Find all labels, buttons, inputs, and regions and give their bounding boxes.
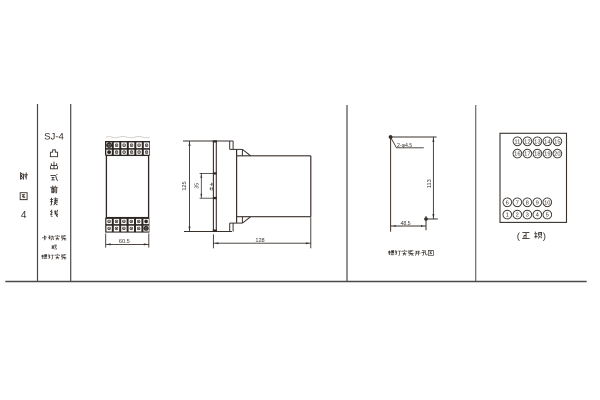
svg-text:8: 8 — [526, 200, 529, 206]
svg-text:48.5: 48.5 — [400, 221, 410, 227]
svg-text:11: 11 — [514, 139, 520, 145]
svg-text:): ) — [543, 231, 546, 242]
svg-text:125: 125 — [182, 181, 188, 190]
svg-text:14: 14 — [544, 139, 551, 145]
svg-text:128: 128 — [255, 238, 264, 244]
svg-text:35: 35 — [195, 183, 201, 189]
svg-text:5: 5 — [546, 213, 549, 219]
svg-text:13: 13 — [534, 139, 540, 145]
svg-text:17: 17 — [524, 152, 530, 158]
svg-text:12: 12 — [524, 139, 530, 145]
svg-text:SJ-4: SJ-4 — [44, 132, 64, 143]
svg-text:3: 3 — [526, 213, 529, 219]
svg-text:7: 7 — [516, 200, 519, 206]
svg-text:19: 19 — [544, 152, 550, 158]
svg-text:10: 10 — [544, 200, 550, 206]
svg-text:20: 20 — [554, 152, 560, 158]
svg-text:16: 16 — [514, 152, 520, 158]
svg-text:9: 9 — [536, 200, 539, 206]
svg-text:6: 6 — [506, 200, 509, 206]
svg-text:15: 15 — [554, 139, 560, 145]
svg-text:2: 2 — [516, 213, 519, 219]
svg-text:(: ( — [517, 231, 521, 242]
svg-text:18: 18 — [534, 152, 540, 158]
svg-text:113: 113 — [427, 179, 433, 188]
svg-text:1: 1 — [506, 213, 509, 219]
svg-text:4: 4 — [21, 210, 27, 221]
svg-text:60.5: 60.5 — [119, 239, 130, 245]
svg-text:2-φ4.5: 2-φ4.5 — [397, 143, 412, 149]
